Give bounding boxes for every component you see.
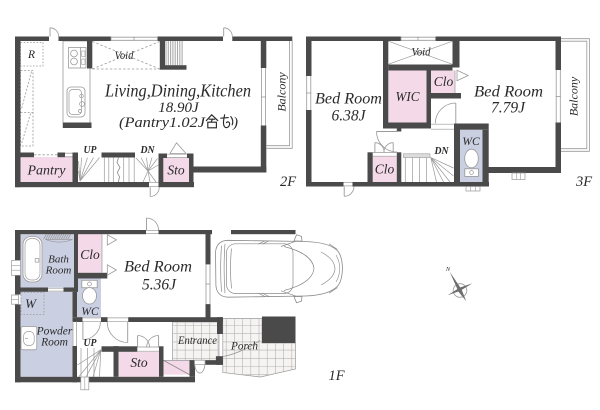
svg-text:Clo: Clo: [80, 247, 100, 262]
svg-text:Bed Room: Bed Room: [124, 258, 192, 275]
svg-text:7.79J: 7.79J: [491, 99, 526, 116]
svg-text:Bed Room: Bed Room: [315, 90, 382, 107]
svg-text:Room: Room: [40, 337, 68, 349]
svg-text:1F: 1F: [328, 368, 344, 384]
svg-text:DN: DN: [140, 145, 156, 156]
svg-text:3F: 3F: [575, 174, 592, 190]
svg-text:UP: UP: [84, 145, 98, 156]
svg-text:Void: Void: [115, 50, 134, 62]
svg-text:WC: WC: [462, 136, 480, 148]
svg-text:5.36J: 5.36J: [142, 276, 177, 293]
svg-text:Entrance: Entrance: [177, 335, 217, 347]
svg-text:WIC: WIC: [396, 90, 421, 105]
svg-text:UP: UP: [84, 338, 98, 349]
svg-text:Living,Dining,Kitchen: Living,Dining,Kitchen: [104, 81, 251, 101]
svg-text:R: R: [27, 49, 35, 61]
svg-text:Clo: Clo: [434, 74, 454, 89]
svg-text:Room: Room: [45, 264, 72, 276]
svg-text:(Pantry1.02J: (Pantry1.02J: [119, 115, 206, 131]
svg-text:Porch: Porch: [230, 341, 258, 353]
svg-text:18.90J: 18.90J: [158, 100, 200, 116]
svg-text:Bed Room: Bed Room: [474, 83, 543, 100]
svg-text:Sto: Sto: [167, 163, 185, 178]
svg-text:DN: DN: [434, 146, 450, 157]
svg-text:Clo: Clo: [375, 162, 395, 177]
svg-text:W: W: [25, 296, 37, 311]
svg-text:6.38J: 6.38J: [331, 107, 366, 124]
svg-text:Void: Void: [412, 47, 431, 59]
svg-text:WC: WC: [81, 306, 99, 318]
svg-text:Balcony: Balcony: [275, 72, 289, 112]
svg-text:Balcony: Balcony: [567, 76, 581, 116]
svg-text:Sto: Sto: [130, 355, 148, 370]
svg-text:2F: 2F: [280, 174, 296, 190]
svg-text:Pantry: Pantry: [27, 163, 67, 178]
